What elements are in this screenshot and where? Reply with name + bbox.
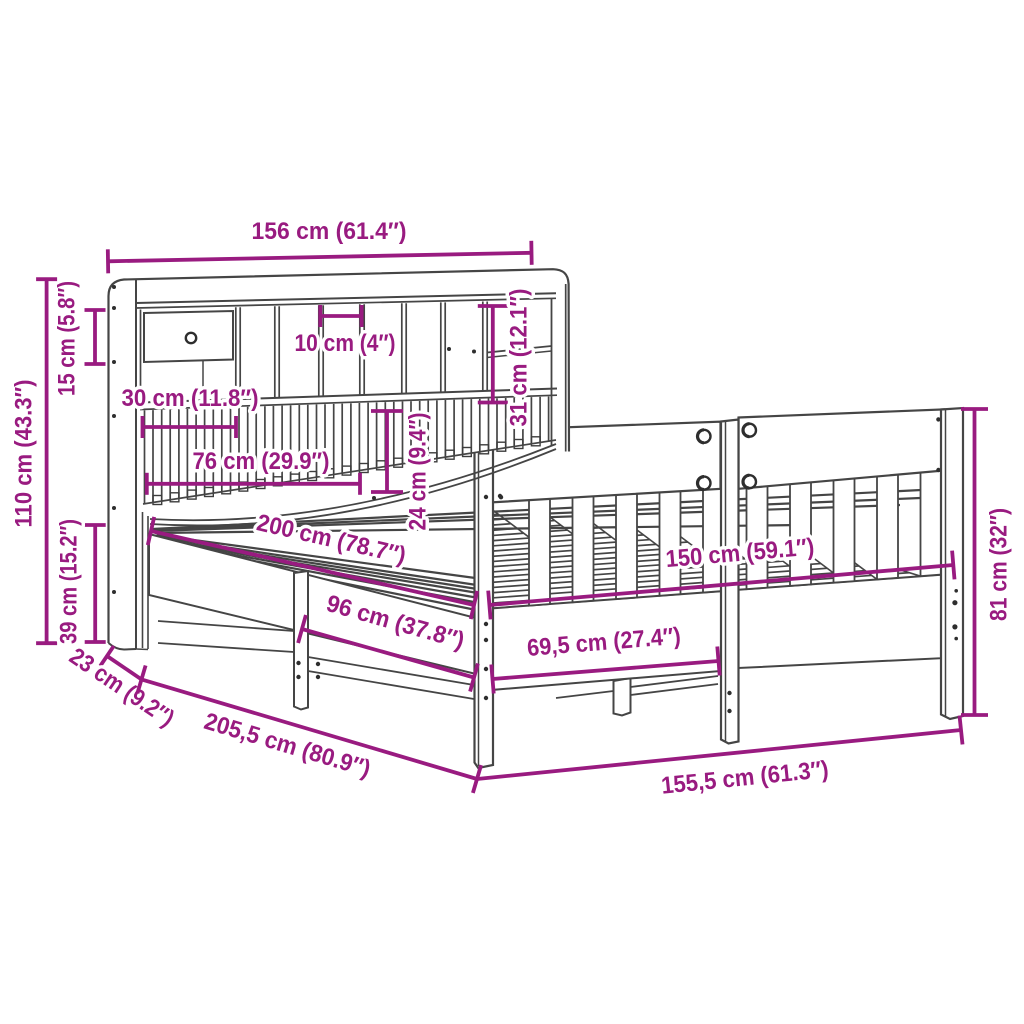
svg-text:81 cm (32″): 81 cm (32″): [985, 508, 1012, 621]
svg-text:110 cm (43.3″): 110 cm (43.3″): [10, 380, 37, 528]
svg-text:31 cm (12.1″): 31 cm (12.1″): [505, 289, 532, 427]
svg-text:24 cm (9.4″): 24 cm (9.4″): [404, 413, 431, 531]
svg-text:39 cm (15.2″): 39 cm (15.2″): [55, 519, 82, 644]
svg-text:10 cm (4″): 10 cm (4″): [295, 330, 396, 357]
svg-text:156 cm (61.4″): 156 cm (61.4″): [252, 218, 407, 245]
svg-text:76 cm (29.9″): 76 cm (29.9″): [193, 448, 330, 475]
svg-text:15 cm (5.8″): 15 cm (5.8″): [53, 281, 80, 396]
svg-text:30 cm (11.8″): 30 cm (11.8″): [122, 385, 259, 412]
